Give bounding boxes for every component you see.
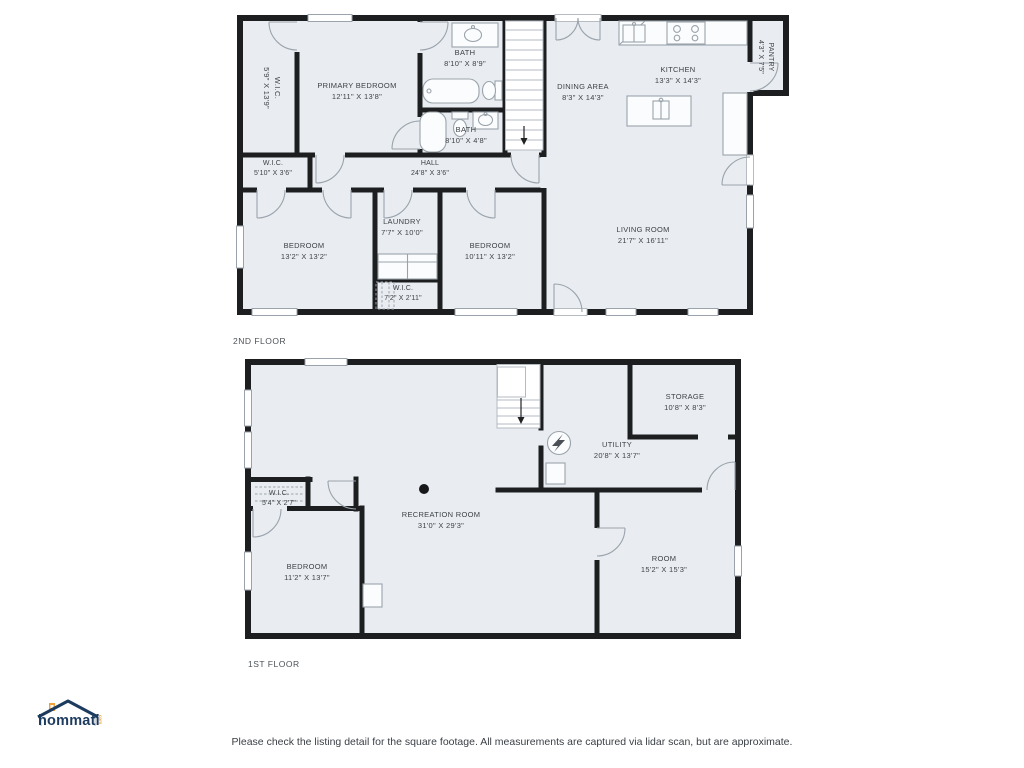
exterior-door (747, 155, 754, 185)
room-label-dining-area: DINING AREA8'3" X 14'3" (557, 82, 609, 104)
window (245, 432, 252, 468)
wall-fixture (363, 584, 382, 607)
room-label-kitchen: KITCHEN13'3" X 14'3" (655, 65, 701, 87)
window (735, 546, 742, 576)
logo-wordmark: hommati (38, 713, 100, 729)
kitchen-counter (723, 93, 747, 155)
utility-appliance (546, 463, 565, 484)
window (688, 309, 718, 316)
logo-com-suffix: com (98, 715, 103, 724)
window (305, 359, 347, 366)
room-label-wic-3: W.I.C.7'2" X 2'11" (384, 284, 422, 304)
window (308, 15, 352, 22)
room-label-room: ROOM15'2" X 15'3" (641, 554, 687, 576)
room-label-recreation-room: RECREATION ROOM31'0" X 29'3" (402, 510, 481, 532)
toilet-icon (452, 112, 468, 119)
shower-icon (420, 112, 446, 152)
stove-icon (667, 22, 705, 44)
room-label-laundry: LAUNDRY7'7" X 10'0" (381, 217, 423, 239)
support-column (419, 484, 429, 494)
electrical-panel-icon (548, 432, 571, 455)
window (245, 552, 252, 590)
room-label-bedroom-3: BEDROOM11'2" X 13'7" (284, 562, 330, 584)
room-label-wic-4: W.I.C.5'4" X 2'7" (262, 489, 296, 509)
window (252, 309, 297, 316)
room-label-primary-bedroom: PRIMARY BEDROOM12'11" X 13'8" (317, 81, 396, 103)
window (455, 309, 517, 316)
staircase-icon (497, 365, 540, 429)
room-label-hall: HALL24'8" X 3'6" (411, 159, 449, 179)
washer-dryer-icon (378, 254, 437, 279)
room-label-storage: STORAGE10'8" X 8'3" (664, 392, 706, 414)
room-label-bath-1: BATH8'10" X 8'9" (444, 48, 486, 70)
window (245, 390, 252, 426)
floor-plan-graphic (0, 0, 1024, 768)
room-label-bedroom-2: BEDROOM10'11" X 13'2" (465, 241, 515, 263)
floorplan-2nd-floor (237, 15, 787, 316)
room-label-pantry: PANTRY4'3" X 7'5" (755, 40, 775, 74)
window (606, 309, 636, 316)
room-label-bath-2: BATH8'10" X 4'8" (445, 125, 487, 147)
hommati-logo: hommati com (36, 698, 102, 730)
room-label-utility: UTILITY20'8" X 13'7" (594, 440, 640, 462)
staircase-icon (506, 21, 544, 150)
room-label-wic-1: W.I.C.5'9" X 13'9" (260, 67, 282, 109)
floor-label-2nd: 2ND FLOOR (233, 336, 286, 346)
room-label-living-room: LIVING ROOM21'7" X 16'11" (616, 225, 669, 247)
room-label-wic-2: W.I.C.5'10" X 3'6" (254, 159, 292, 179)
room-label-bedroom-1: BEDROOM13'2" X 13'2" (281, 241, 327, 263)
window (747, 195, 754, 228)
floor-label-1st: 1ST FLOOR (248, 659, 300, 669)
window (237, 226, 244, 268)
floor-plan-page: W.I.C.5'9" X 13'9" PRIMARY BEDROOM12'11"… (0, 0, 1024, 768)
disclaimer-text: Please check the listing detail for the … (0, 736, 1024, 748)
